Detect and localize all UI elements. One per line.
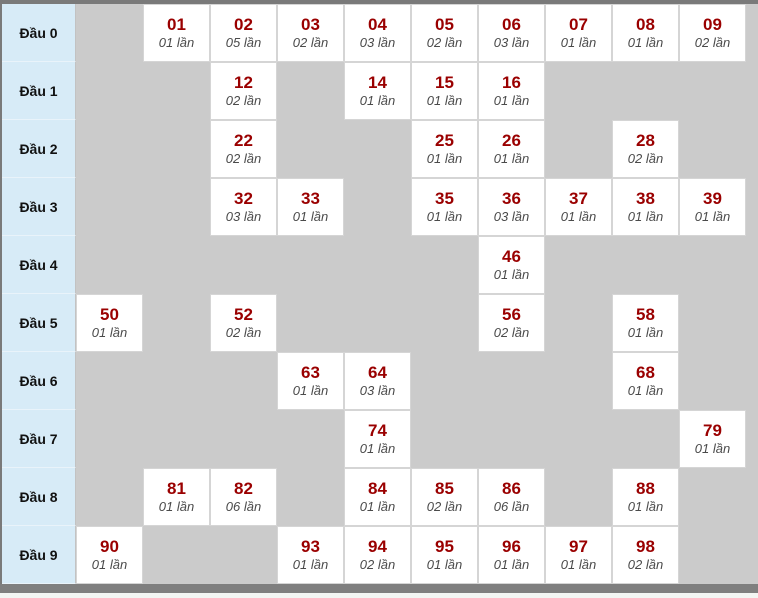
number-cell: 2202 lần: [210, 120, 277, 178]
number-cell: 5801 lần: [612, 294, 679, 352]
empty-cell: [679, 294, 746, 352]
cell-frequency: 01 lần: [628, 35, 663, 52]
empty-cell: [210, 352, 277, 410]
cell-frequency: 01 lần: [159, 499, 194, 516]
number-cell: 5202 lần: [210, 294, 277, 352]
empty-cell: [545, 410, 612, 468]
cell-frequency: 01 lần: [427, 93, 462, 110]
row-header: Đầu 2: [2, 120, 76, 178]
cell-frequency: 01 lần: [628, 383, 663, 400]
empty-cell: [277, 120, 344, 178]
cell-number: 26: [502, 130, 521, 151]
cell-frequency: 01 lần: [494, 151, 529, 168]
cell-frequency: 01 lần: [293, 557, 328, 574]
number-cell: 8206 lần: [210, 468, 277, 526]
cell-number: 38: [636, 188, 655, 209]
cell-number: 93: [301, 536, 320, 557]
cell-frequency: 01 lần: [695, 441, 730, 458]
empty-cell: [344, 294, 411, 352]
empty-cell: [76, 178, 143, 236]
cell-number: 15: [435, 72, 454, 93]
row-header: Đầu 8: [2, 468, 76, 526]
number-cell: 1401 lần: [344, 62, 411, 120]
number-cell: 9802 lần: [612, 526, 679, 584]
number-cell: 5602 lần: [478, 294, 545, 352]
cell-frequency: 02 lần: [427, 499, 462, 516]
cell-frequency: 01 lần: [561, 35, 596, 52]
empty-cell: [411, 352, 478, 410]
cell-frequency: 06 lần: [494, 499, 529, 516]
head-digit-frequency-table: Đầu 00101 lần0205 lần0302 lần0403 lần050…: [2, 4, 746, 584]
cell-number: 07: [569, 14, 588, 35]
cell-frequency: 02 lần: [494, 325, 529, 342]
empty-cell: [344, 236, 411, 294]
empty-cell: [411, 294, 478, 352]
cell-frequency: 01 lần: [695, 209, 730, 226]
cell-frequency: 02 lần: [628, 151, 663, 168]
number-cell: 8502 lần: [411, 468, 478, 526]
cell-number: 90: [100, 536, 119, 557]
empty-cell: [545, 120, 612, 178]
cell-number: 98: [636, 536, 655, 557]
number-cell: 8606 lần: [478, 468, 545, 526]
cell-number: 88: [636, 478, 655, 499]
row-header: Đầu 1: [2, 62, 76, 120]
number-cell: 9701 lần: [545, 526, 612, 584]
cell-number: 36: [502, 188, 521, 209]
cell-frequency: 01 lần: [494, 557, 529, 574]
number-cell: 6403 lần: [344, 352, 411, 410]
row-header: Đầu 9: [2, 526, 76, 584]
cell-frequency: 01 lần: [360, 441, 395, 458]
empty-cell: [545, 62, 612, 120]
cell-number: 39: [703, 188, 722, 209]
empty-cell: [143, 62, 210, 120]
page-background-strip: [0, 593, 758, 598]
cell-frequency: 01 lần: [293, 383, 328, 400]
cell-frequency: 01 lần: [360, 499, 395, 516]
empty-cell: [143, 352, 210, 410]
cell-number: 63: [301, 362, 320, 383]
cell-number: 58: [636, 304, 655, 325]
number-cell: 3603 lần: [478, 178, 545, 236]
cell-number: 79: [703, 420, 722, 441]
number-cell: 1601 lần: [478, 62, 545, 120]
number-cell: 3801 lần: [612, 178, 679, 236]
cell-number: 28: [636, 130, 655, 151]
cell-number: 74: [368, 420, 387, 441]
cell-number: 94: [368, 536, 387, 557]
number-cell: 0101 lần: [143, 4, 210, 62]
cell-frequency: 03 lần: [360, 35, 395, 52]
row-header: Đầu 5: [2, 294, 76, 352]
cell-number: 32: [234, 188, 253, 209]
cell-number: 14: [368, 72, 387, 93]
row-header: Đầu 0: [2, 4, 76, 62]
cell-frequency: 02 lần: [628, 557, 663, 574]
cell-number: 86: [502, 478, 521, 499]
number-cell: 3203 lần: [210, 178, 277, 236]
number-cell: 8801 lần: [612, 468, 679, 526]
number-cell: 9301 lần: [277, 526, 344, 584]
empty-cell: [277, 294, 344, 352]
cell-number: 68: [636, 362, 655, 383]
empty-cell: [76, 410, 143, 468]
cell-frequency: 01 lần: [561, 557, 596, 574]
cell-frequency: 02 lần: [226, 151, 261, 168]
cell-frequency: 01 lần: [92, 557, 127, 574]
number-cell: 0603 lần: [478, 4, 545, 62]
empty-cell: [76, 62, 143, 120]
cell-frequency: 03 lần: [360, 383, 395, 400]
row-header: Đầu 3: [2, 178, 76, 236]
cell-number: 04: [368, 14, 387, 35]
number-cell: 5001 lần: [76, 294, 143, 352]
cell-frequency: 02 lần: [226, 325, 261, 342]
cell-number: 06: [502, 14, 521, 35]
cell-frequency: 03 lần: [226, 209, 261, 226]
number-cell: 3301 lần: [277, 178, 344, 236]
cell-number: 95: [435, 536, 454, 557]
cell-number: 81: [167, 478, 186, 499]
empty-cell: [277, 236, 344, 294]
empty-cell: [143, 236, 210, 294]
cell-number: 12: [234, 72, 253, 93]
cell-frequency: 02 lần: [360, 557, 395, 574]
cell-number: 64: [368, 362, 387, 383]
empty-cell: [411, 236, 478, 294]
empty-cell: [679, 468, 746, 526]
cell-number: 33: [301, 188, 320, 209]
empty-cell: [478, 352, 545, 410]
empty-cell: [210, 410, 277, 468]
horizontal-scrollbar[interactable]: [0, 584, 758, 593]
empty-cell: [76, 120, 143, 178]
cell-number: 02: [234, 14, 253, 35]
empty-cell: [612, 62, 679, 120]
empty-cell: [143, 294, 210, 352]
cell-frequency: 02 lần: [293, 35, 328, 52]
empty-cell: [679, 352, 746, 410]
number-cell: 2601 lần: [478, 120, 545, 178]
number-cell: 1501 lần: [411, 62, 478, 120]
cell-frequency: 01 lần: [427, 557, 462, 574]
empty-cell: [76, 4, 143, 62]
number-cell: 0502 lần: [411, 4, 478, 62]
empty-cell: [612, 236, 679, 294]
cell-frequency: 03 lần: [494, 35, 529, 52]
number-cell: 8101 lần: [143, 468, 210, 526]
number-cell: 3501 lần: [411, 178, 478, 236]
cell-number: 56: [502, 304, 521, 325]
cell-number: 08: [636, 14, 655, 35]
cell-frequency: 05 lần: [226, 35, 261, 52]
cell-frequency: 01 lần: [561, 209, 596, 226]
empty-cell: [679, 526, 746, 584]
empty-cell: [210, 526, 277, 584]
cell-number: 16: [502, 72, 521, 93]
number-cell: 0205 lần: [210, 4, 277, 62]
cell-frequency: 01 lần: [628, 325, 663, 342]
empty-cell: [143, 120, 210, 178]
cell-number: 37: [569, 188, 588, 209]
cell-frequency: 02 lần: [427, 35, 462, 52]
number-cell: 7901 lần: [679, 410, 746, 468]
cell-number: 82: [234, 478, 253, 499]
cell-frequency: 01 lần: [494, 93, 529, 110]
number-cell: 9501 lần: [411, 526, 478, 584]
number-cell: 6801 lần: [612, 352, 679, 410]
cell-frequency: 02 lần: [226, 93, 261, 110]
number-cell: 9402 lần: [344, 526, 411, 584]
cell-number: 52: [234, 304, 253, 325]
cell-frequency: 01 lần: [628, 209, 663, 226]
empty-cell: [76, 236, 143, 294]
empty-cell: [545, 468, 612, 526]
empty-cell: [545, 294, 612, 352]
cell-number: 46: [502, 246, 521, 267]
empty-cell: [277, 62, 344, 120]
row-header: Đầu 7: [2, 410, 76, 468]
lottery-frequency-page: Đầu 00101 lần0205 lần0302 lần0403 lần050…: [0, 0, 758, 598]
cell-number: 09: [703, 14, 722, 35]
number-cell: 0302 lần: [277, 4, 344, 62]
empty-cell: [277, 410, 344, 468]
number-cell: 6301 lần: [277, 352, 344, 410]
number-cell: 2802 lần: [612, 120, 679, 178]
number-cell: 0403 lần: [344, 4, 411, 62]
cell-number: 97: [569, 536, 588, 557]
number-cell: 8401 lần: [344, 468, 411, 526]
cell-number: 03: [301, 14, 320, 35]
empty-cell: [344, 120, 411, 178]
number-cell: 3701 lần: [545, 178, 612, 236]
number-cell: 3901 lần: [679, 178, 746, 236]
empty-cell: [76, 468, 143, 526]
cell-number: 05: [435, 14, 454, 35]
number-cell: 9001 lần: [76, 526, 143, 584]
cell-number: 84: [368, 478, 387, 499]
empty-cell: [344, 178, 411, 236]
number-cell: 0801 lần: [612, 4, 679, 62]
empty-cell: [545, 352, 612, 410]
number-cell: 2501 lần: [411, 120, 478, 178]
empty-cell: [679, 120, 746, 178]
empty-cell: [143, 178, 210, 236]
empty-cell: [545, 236, 612, 294]
cell-frequency: 01 lần: [360, 93, 395, 110]
empty-cell: [76, 352, 143, 410]
empty-cell: [143, 526, 210, 584]
cell-frequency: 02 lần: [695, 35, 730, 52]
empty-cell: [411, 410, 478, 468]
empty-cell: [210, 236, 277, 294]
empty-cell: [612, 410, 679, 468]
cell-frequency: 03 lần: [494, 209, 529, 226]
cell-number: 50: [100, 304, 119, 325]
cell-number: 85: [435, 478, 454, 499]
number-cell: 9601 lần: [478, 526, 545, 584]
cell-frequency: 01 lần: [92, 325, 127, 342]
cell-number: 96: [502, 536, 521, 557]
cell-number: 01: [167, 14, 186, 35]
cell-number: 22: [234, 130, 253, 151]
cell-frequency: 01 lần: [494, 267, 529, 284]
number-cell: 1202 lần: [210, 62, 277, 120]
cell-frequency: 01 lần: [159, 35, 194, 52]
empty-cell: [679, 62, 746, 120]
row-header: Đầu 6: [2, 352, 76, 410]
cell-frequency: 01 lần: [293, 209, 328, 226]
cell-number: 25: [435, 130, 454, 151]
cell-frequency: 01 lần: [628, 499, 663, 516]
empty-cell: [277, 468, 344, 526]
cell-frequency: 01 lần: [427, 151, 462, 168]
empty-cell: [478, 410, 545, 468]
number-cell: 0701 lần: [545, 4, 612, 62]
number-cell: 7401 lần: [344, 410, 411, 468]
row-header: Đầu 4: [2, 236, 76, 294]
number-cell: 4601 lần: [478, 236, 545, 294]
cell-frequency: 01 lần: [427, 209, 462, 226]
cell-frequency: 06 lần: [226, 499, 261, 516]
cell-number: 35: [435, 188, 454, 209]
empty-cell: [143, 410, 210, 468]
number-cell: 0902 lần: [679, 4, 746, 62]
empty-cell: [679, 236, 746, 294]
